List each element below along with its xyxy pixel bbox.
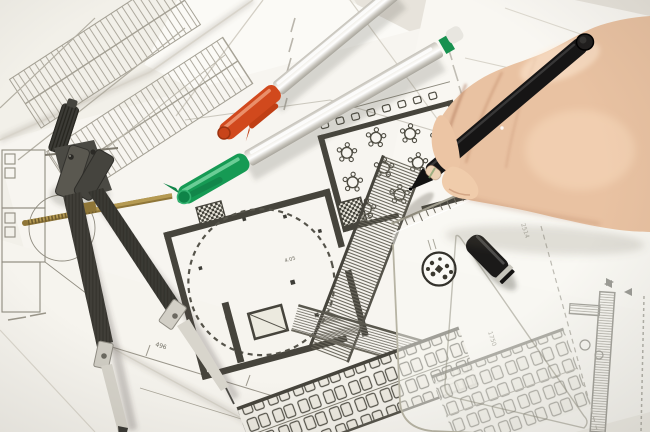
photo-architect-desk: 496 4.05 bbox=[0, 0, 650, 432]
scene-canvas: 496 4.05 bbox=[0, 0, 650, 432]
vignette bbox=[0, 0, 650, 432]
